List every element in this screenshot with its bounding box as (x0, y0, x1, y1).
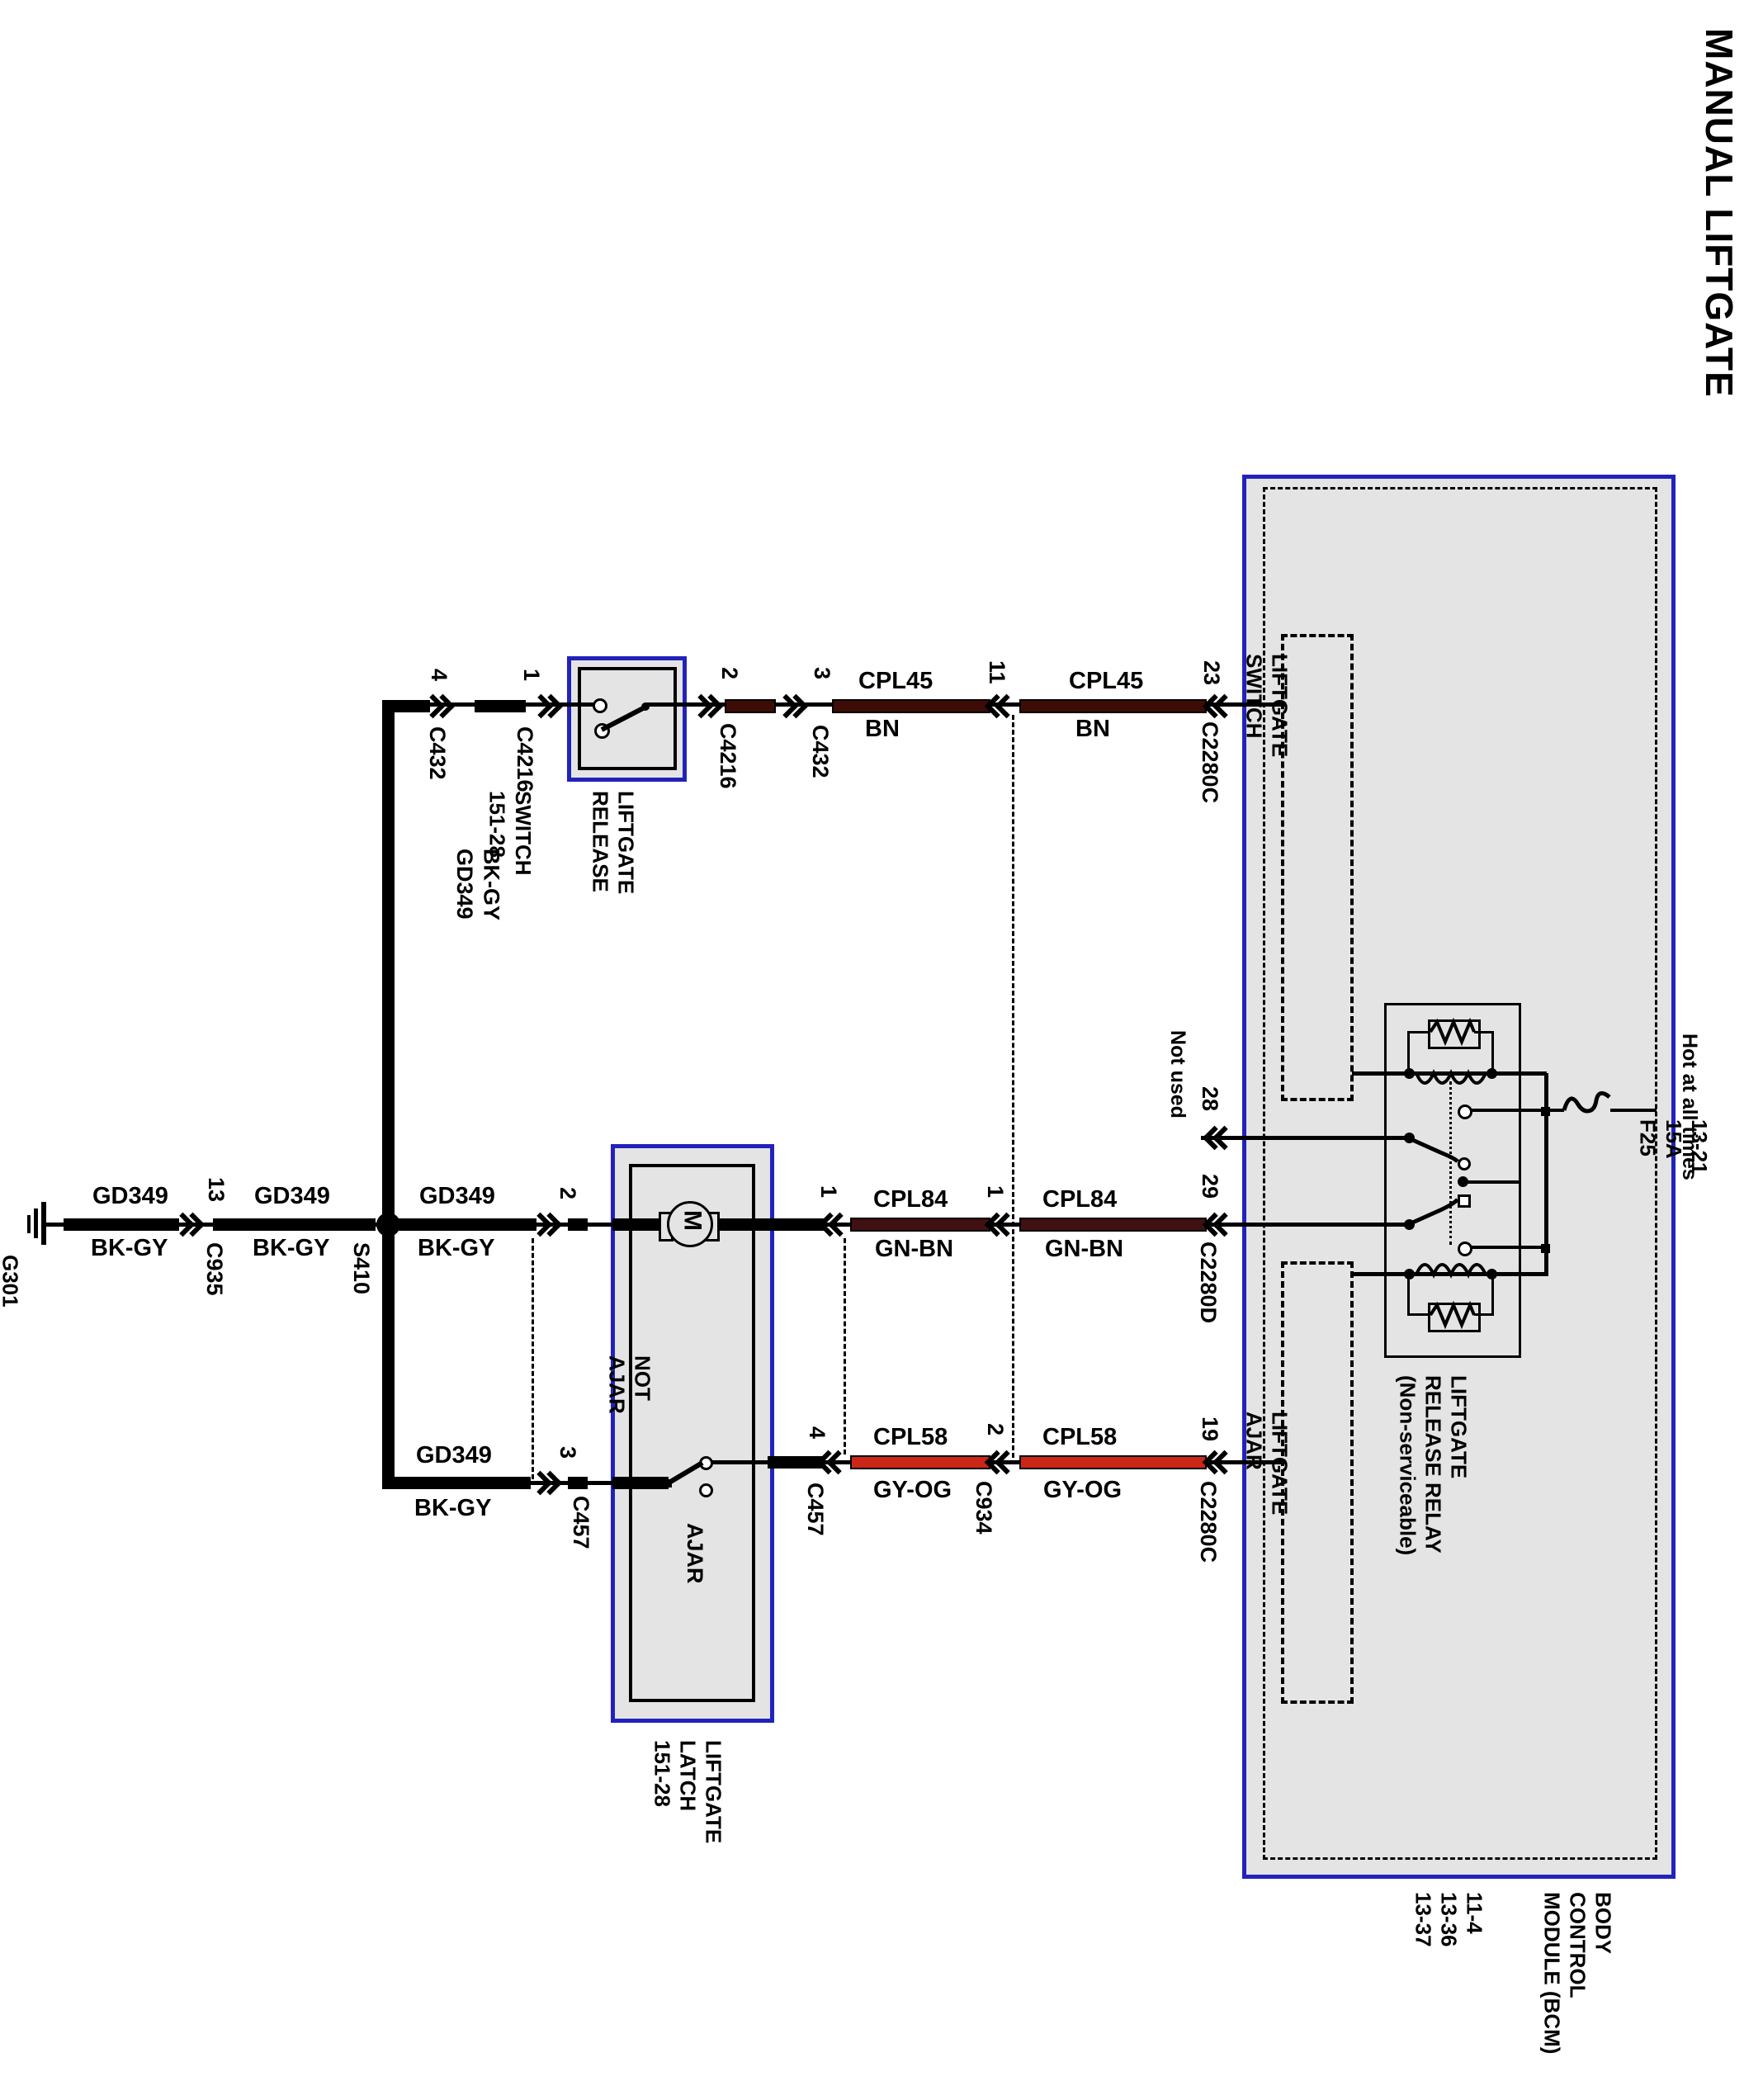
pin-number: 2 (982, 1423, 1008, 1435)
relay-coil1-wire (1352, 1071, 1547, 1076)
release-switch-inner-box (578, 667, 677, 770)
relay-no-contact-wire (1471, 1109, 1547, 1112)
connector-arrow (533, 1208, 555, 1240)
release-switch-terminal (594, 723, 610, 739)
relay-label: LIFTGATERELEASE RELAY(Non-serviceable) (1343, 1375, 1523, 1555)
wire-label: GD349 (92, 1184, 168, 1208)
page-title: MANUAL LIFTGATE (1700, 28, 1738, 398)
wire-color: GY-OG (873, 1478, 952, 1502)
connector-label: C432 (807, 725, 833, 778)
pin-number: 1 (815, 1185, 841, 1198)
wire-color: GN-BN (1045, 1237, 1123, 1261)
wire-color: BK-GY (91, 1236, 168, 1260)
release-switch-terminal (593, 698, 607, 713)
wire-label: GD349 (416, 1443, 492, 1468)
wire-color: BN (1075, 717, 1110, 741)
connector-arrow (989, 1446, 1010, 1478)
pin-number: 11 (984, 660, 1009, 684)
connector-arrow (176, 1208, 197, 1240)
wire-color: BK-GY (418, 1236, 494, 1260)
wire-color: BK-GY (253, 1236, 329, 1260)
connector-arrow (534, 690, 555, 721)
c457-left-connector-line (532, 1238, 534, 1479)
relay-resistor-2 (1428, 1303, 1481, 1332)
connector-arrow (822, 1208, 844, 1240)
fuse-wire (1610, 1109, 1657, 1112)
connector-label: C457 (802, 1483, 828, 1536)
wire-label: CPL58 (873, 1425, 948, 1450)
latch-ajar-label: AJAR (682, 1523, 707, 1584)
wire-label: CPL58 (1042, 1425, 1117, 1450)
ground-branch-wire (382, 700, 395, 1489)
wire-label: CPL45 (1069, 669, 1143, 693)
bcm-label: BODYCONTROLMODULE (BCM) 11-413-3613-37 (1359, 1892, 1667, 2054)
connector-label: C935 (201, 1242, 227, 1296)
c457-right-connector-line (844, 1238, 846, 1454)
relay-common-wire (1466, 1180, 1519, 1184)
c934-connector-line (1012, 715, 1014, 1458)
ground-symbol (41, 1202, 46, 1245)
fuse-wire (1548, 1109, 1564, 1112)
connector-label: C4216 (512, 726, 537, 792)
wire-color: BN (865, 717, 900, 741)
pin-number: 4 (804, 1426, 830, 1439)
connector-label: C457 (568, 1496, 593, 1549)
wire-color: GN-BN (875, 1237, 953, 1261)
connector-arrow (426, 690, 447, 721)
wiring-diagram-manual-liftgate: M CPL45 BN CPL45 BN CPL84 (0, 0, 1763, 2100)
relay-coil2-wire (1352, 1272, 1547, 1276)
pin-number: 3 (555, 1446, 580, 1459)
ground-label: G30110-12 (0, 1255, 74, 1310)
pin-number: 1 (982, 1185, 1008, 1198)
pin-number: 4 (426, 669, 451, 681)
pin-number: 3 (809, 667, 834, 679)
splice-label: S410 (348, 1242, 374, 1294)
relay-resistor-1 (1428, 1019, 1481, 1049)
ajar-switch-contact-open (699, 1483, 713, 1497)
not-used-label: Not used (1165, 1030, 1189, 1119)
pin-number: 13 (203, 1177, 229, 1202)
latch-not-ajar-label: NOTAJAR (552, 1355, 707, 1414)
wire-label: CPL84 (873, 1187, 948, 1212)
latch-label: LIFTGATELATCH151-28 (598, 1740, 778, 1843)
pin-number: 29 (1197, 1174, 1222, 1199)
pin-number: 1 (518, 669, 544, 681)
relay-no-contact (1458, 1104, 1472, 1119)
bcm-switch-block-label: LIFTGATESWITCH (1189, 654, 1344, 757)
wire-color: GY-OG (1043, 1478, 1122, 1502)
connector-arrow (694, 690, 716, 721)
motor-label: M (678, 1210, 707, 1231)
pin-number: 2 (555, 1187, 580, 1199)
connector-arrow (820, 1446, 842, 1478)
relay-nc-contact (1458, 1242, 1472, 1256)
connector-arrow (533, 1467, 555, 1498)
release-switch-label: LIFTGATERELEASE SWITCH151-28 (432, 791, 690, 894)
connector-arrow (779, 690, 801, 721)
wire-label: GD349 (254, 1184, 330, 1208)
connector-arrow (1207, 1208, 1228, 1240)
pin-number: 2 (716, 667, 742, 679)
connector-label: C934 (971, 1481, 996, 1535)
relay-nc-contact-wire (1471, 1246, 1547, 1249)
wire-label: GD349 (419, 1184, 495, 1208)
wire-label: CPL45 (858, 669, 933, 693)
connector-label: C2280D (1195, 1242, 1221, 1323)
connector-arrow (1207, 1122, 1228, 1153)
connector-label: C4216 (715, 723, 740, 789)
bcm-ajar-block-label: LIFTGATEAJAR (1189, 1412, 1344, 1515)
fuse-label: F2515A13-21 (1583, 1119, 1763, 1175)
connector-arrow (989, 690, 1010, 721)
ajar-switch-contact-closed (699, 1456, 713, 1470)
pin-number: 28 (1197, 1086, 1222, 1111)
connector-label: C432 (424, 726, 450, 780)
connector-arrow (989, 1208, 1010, 1240)
wire-label: CPL84 (1042, 1187, 1117, 1212)
splice-s410 (376, 1213, 400, 1237)
wire-color: BK-GY (414, 1496, 491, 1521)
relay-armature-link (1449, 1081, 1452, 1245)
